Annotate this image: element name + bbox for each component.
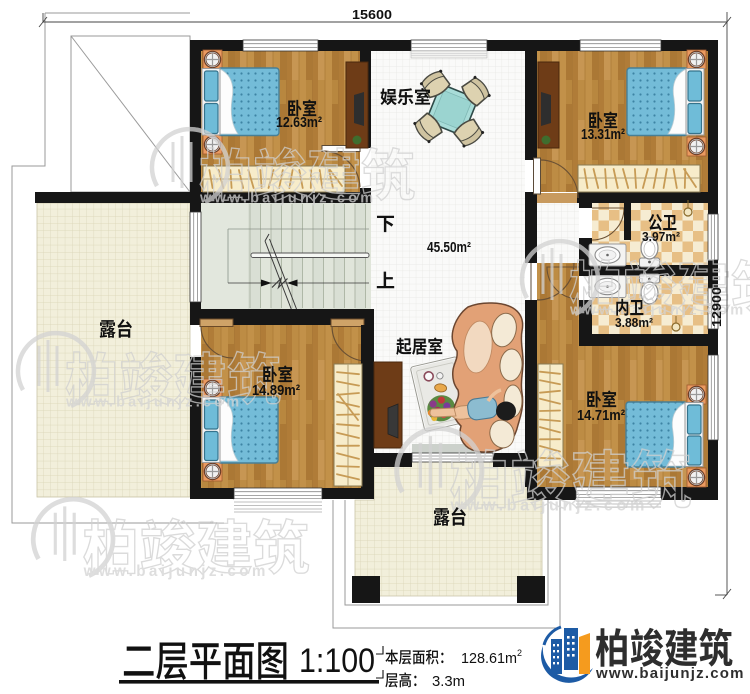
- svg-text:3.97m²: 3.97m²: [642, 230, 680, 244]
- svg-text:12.63m²: 12.63m²: [276, 114, 322, 131]
- svg-text:www.baijunjz.com: www.baijunjz.com: [65, 395, 242, 411]
- svg-text:12900: 12900: [709, 287, 724, 327]
- svg-text:128.61m: 128.61m: [461, 650, 517, 667]
- svg-text:3.3m: 3.3m: [432, 673, 465, 690]
- svg-text:15600: 15600: [352, 7, 392, 22]
- svg-text:www.baijunjz.com: www.baijunjz.com: [199, 191, 376, 207]
- svg-text:45.50m²: 45.50m²: [427, 240, 471, 256]
- svg-text:3.88m²: 3.88m²: [615, 316, 653, 330]
- svg-text:www.baijunjz.com: www.baijunjz.com: [83, 563, 269, 580]
- svg-text:www.baijunjz.com: www.baijunjz.com: [595, 665, 745, 682]
- svg-text:www.baijunjz.com: www.baijunjz.com: [450, 497, 648, 515]
- svg-text:2: 2: [517, 648, 522, 658]
- svg-text:13.31m²: 13.31m²: [581, 126, 625, 143]
- svg-text:14.71m²: 14.71m²: [577, 407, 625, 424]
- svg-text:14.89m²: 14.89m²: [252, 382, 300, 399]
- svg-text:1:100: 1:100: [299, 642, 375, 680]
